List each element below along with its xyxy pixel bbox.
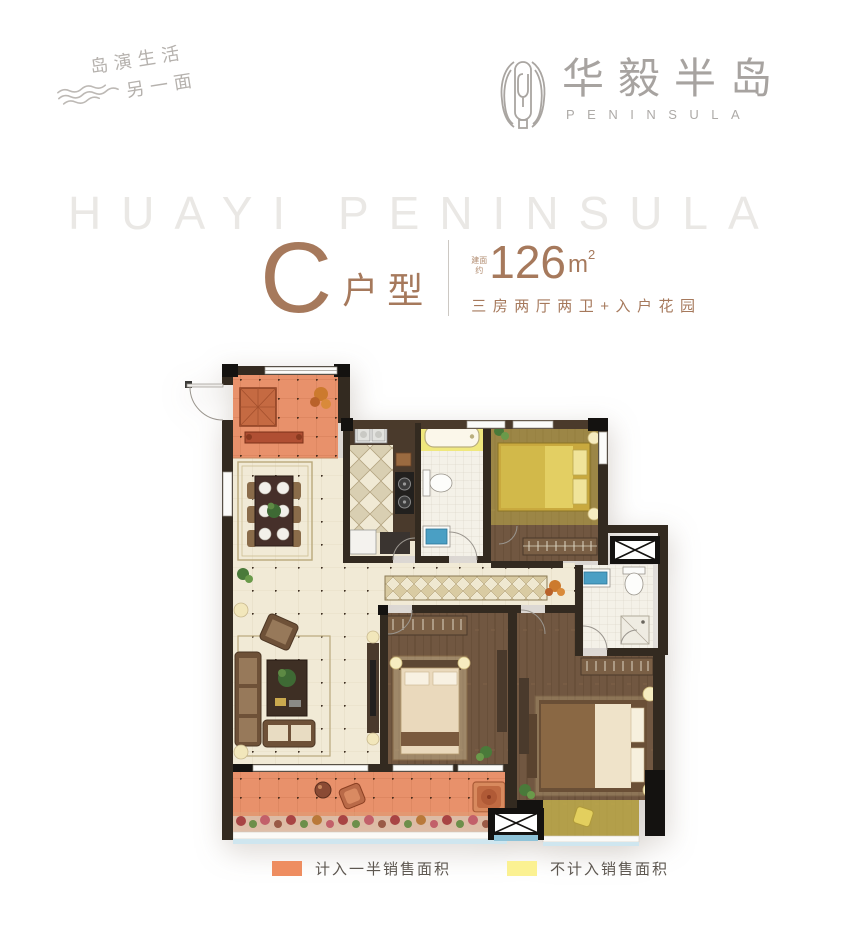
legend-swatch-half-area xyxy=(272,861,302,876)
bed-3 xyxy=(393,656,467,760)
dining-table xyxy=(247,476,301,547)
room-balcony-south xyxy=(233,772,507,844)
brand-name-en: PENINSULA xyxy=(562,107,786,122)
room-bedroom-2 xyxy=(491,423,600,525)
waves-icon xyxy=(55,77,124,114)
floorplan-svg xyxy=(183,360,683,852)
room-kitchen xyxy=(348,423,415,556)
legend-label-excluded: 不计入销售面积 xyxy=(550,858,669,879)
page: 岛演生活 另一面 xyxy=(0,0,850,926)
balcony-table xyxy=(315,782,331,798)
watermark-text: HUAYI PENINSULA xyxy=(68,186,779,240)
bed-master xyxy=(527,696,647,796)
elevator-bottom xyxy=(488,808,544,841)
unit-type-label: 户型 xyxy=(342,262,432,314)
title-divider xyxy=(448,240,449,316)
room-corridor-wardrobe xyxy=(491,525,598,561)
wardrobe-master xyxy=(581,658,653,675)
peninsula-emblem-icon xyxy=(494,54,552,139)
unit-letter: C xyxy=(260,238,332,318)
legend-item-excluded: 不计入销售面积 xyxy=(507,858,669,879)
lamp xyxy=(458,657,470,669)
floor-lamp xyxy=(234,603,248,617)
wardrobe-bedroom3 xyxy=(387,616,467,635)
kitchen-cutting-board xyxy=(396,453,411,466)
sink-2 xyxy=(581,569,610,587)
lamp xyxy=(390,657,402,669)
legend-swatch-excluded xyxy=(507,861,537,876)
area-prefix: 建面 约 xyxy=(471,256,487,275)
elevator-top xyxy=(610,536,660,564)
legend-label-half-area: 计入一半销售面积 xyxy=(315,858,451,879)
room-entry-garden xyxy=(233,375,338,458)
room-balcony-excluded xyxy=(543,800,639,846)
legend: 计入一半销售面积 不计入销售面积 xyxy=(272,858,725,879)
floor-lamp xyxy=(234,745,248,759)
sink-1 xyxy=(423,526,450,547)
room-bedroom-3 xyxy=(387,613,508,764)
room-bath-2 xyxy=(575,565,653,648)
bed-2 xyxy=(498,443,590,511)
kitchen-fridge xyxy=(350,530,376,554)
tagline: 岛演生活 另一面 xyxy=(51,37,200,114)
tv-console-bedroom3 xyxy=(497,650,507,732)
floorplan xyxy=(183,360,683,852)
unit-title: C 户型 建面 约 126 m 2 三房两厅两卫+入户花园 xyxy=(260,238,702,318)
brand-name: 华毅半岛 xyxy=(562,54,786,104)
area-unit: m xyxy=(568,251,588,279)
area-superscript: 2 xyxy=(588,247,595,262)
flower-bed xyxy=(233,812,507,832)
unit-subtitle: 三房两厅两卫+入户花园 xyxy=(471,295,701,316)
room-bath-1 xyxy=(421,423,483,556)
kitchen-stove xyxy=(395,472,414,514)
legend-item-half-area: 计入一半销售面积 xyxy=(272,858,451,879)
tv-console-master xyxy=(519,678,529,754)
room-hallway xyxy=(380,563,575,605)
balcony-jacuzzi xyxy=(473,782,505,812)
brand-logo: 华毅半岛 PENINSULA xyxy=(494,54,786,139)
area-value: 126 xyxy=(489,239,566,285)
